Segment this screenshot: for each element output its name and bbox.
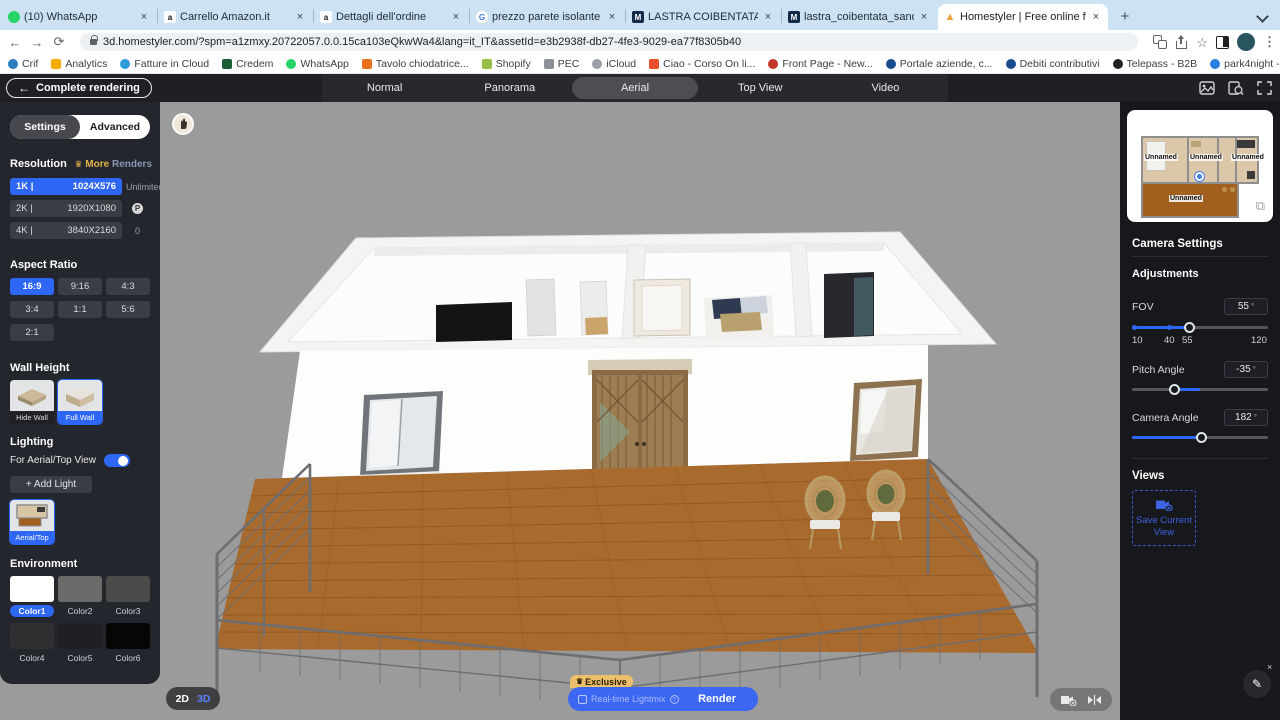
views-title: Views xyxy=(1132,470,1164,482)
unlimited-label: Unlimited xyxy=(126,182,164,192)
profile-avatar[interactable] xyxy=(1237,33,1255,51)
bookmark-fatture[interactable]: Fatture in Cloud xyxy=(120,58,209,70)
resolution-4k-button[interactable]: 4K | 3840X2160 xyxy=(10,222,122,239)
env-color2-swatch[interactable] xyxy=(58,576,102,602)
feedback-button[interactable]: ✎ xyxy=(1243,670,1271,698)
bookmark-star-icon[interactable]: ☆ xyxy=(1196,36,1208,49)
lock-icon xyxy=(90,39,97,45)
render-queue-icon[interactable] xyxy=(1228,81,1244,95)
reload-icon[interactable]: ⟳ xyxy=(48,34,70,50)
env-color5-swatch[interactable] xyxy=(58,623,102,649)
camera-plus-icon[interactable] xyxy=(1060,694,1077,706)
ciao-favicon xyxy=(649,59,659,69)
fov-slider-handle[interactable] xyxy=(1184,322,1195,333)
fov-tick: 55 xyxy=(1182,335,1193,346)
tab-google-search[interactable]: Gprezzo parete isolante sandwic× xyxy=(470,4,624,30)
2d-3d-toggle[interactable]: 2D 3D xyxy=(166,687,220,710)
hand-icon xyxy=(178,118,189,130)
more-renders-link[interactable]: ♛ More Renders xyxy=(74,159,152,170)
reading-list-icon[interactable] xyxy=(1216,36,1229,49)
aerial-3d-scene xyxy=(160,102,1120,720)
amazon-favicon: a xyxy=(164,11,176,23)
help-icon[interactable]: ? xyxy=(670,695,679,704)
url-text: 3d.homestyler.com/?spm=a1zmxy.20722057.0… xyxy=(103,36,741,48)
floorplan-minimap[interactable]: Unnamed Unnamed Unnamed Unnamed ⧉ xyxy=(1127,110,1273,222)
aerial-top-light-preset[interactable]: Aerial/Top xyxy=(10,500,54,544)
fov-tick: 40 xyxy=(1164,335,1175,346)
mode-panorama[interactable]: Panorama xyxy=(447,74,572,102)
env-color3-swatch[interactable] xyxy=(106,576,150,602)
render-settings-sidebar: Settings Advanced Resolution ♛ More Rend… xyxy=(0,102,160,684)
camera-angle-input[interactable]: 182 ° xyxy=(1224,409,1268,426)
room-label: Unnamed xyxy=(1144,154,1178,161)
tab-lastra-file[interactable]: Mlastra_coibentata_sandwich_m× xyxy=(782,4,936,30)
camera-settings-title: Camera Settings xyxy=(1132,238,1223,250)
4k-count-label: 0 xyxy=(135,226,140,236)
camera-angle-slider-handle[interactable] xyxy=(1196,432,1207,443)
ratio-16-9[interactable]: 16:9 xyxy=(10,278,54,295)
google-favicon: G xyxy=(476,11,488,23)
icloud-favicon xyxy=(592,59,602,69)
bookmark-pec[interactable]: PEC xyxy=(544,58,580,70)
pitch-angle-slider[interactable] xyxy=(1132,384,1268,395)
collision-toggle-icon[interactable] xyxy=(1087,694,1102,706)
env-color6-label: Color6 xyxy=(106,652,150,664)
view-mode-segment: Normal Panorama Aerial Top View Video xyxy=(322,74,948,102)
env-color6-swatch[interactable] xyxy=(106,623,150,649)
forward-icon[interactable]: → xyxy=(26,35,48,50)
portale-favicon xyxy=(886,59,896,69)
lighting-title: Lighting xyxy=(10,436,53,448)
bookmark-debiti[interactable]: Debiti contributivi xyxy=(1006,58,1100,70)
browser-menu-icon[interactable]: ⋮ xyxy=(1263,34,1276,50)
bookmark-telepass[interactable]: Telepass - B2B xyxy=(1113,58,1198,70)
pec-favicon xyxy=(544,59,554,69)
fov-tick: 10 xyxy=(1132,335,1143,346)
bookmark-whatsapp[interactable]: WhatsApp xyxy=(286,58,348,70)
mode-video[interactable]: Video xyxy=(823,74,948,102)
close-icon[interactable]: × xyxy=(762,11,774,23)
settings-advanced-tabs: Settings Advanced xyxy=(10,115,150,139)
manomano-favicon: M xyxy=(632,11,644,23)
aspect-ratio-title: Aspect Ratio xyxy=(10,259,77,271)
bookmark-tavolo[interactable]: Tavolo chiodatrice... xyxy=(362,58,469,70)
add-light-button[interactable]: + Add Light xyxy=(10,476,92,493)
ratio-5-6[interactable]: 5:6 xyxy=(106,301,150,318)
env-color1-label: Color1 xyxy=(10,605,54,617)
tab-settings[interactable]: Settings xyxy=(10,115,80,139)
homestyler-favicon: ▲ xyxy=(944,11,956,23)
translate-icon[interactable] xyxy=(1153,35,1167,49)
address-bar[interactable]: 3d.homestyler.com/?spm=a1zmxy.20722057.0… xyxy=(80,33,1138,51)
bookmark-crif[interactable]: Crif xyxy=(8,58,38,70)
resolution-1k-button[interactable]: 1K | 1024X576 xyxy=(10,178,122,195)
wall-height-title: Wall Height xyxy=(10,362,69,374)
close-icon[interactable]: × xyxy=(138,11,150,23)
lightmix-checkbox[interactable] xyxy=(578,695,587,704)
camera-save-icon xyxy=(1155,498,1173,511)
env-color1-swatch[interactable] xyxy=(10,576,54,602)
bookmark-portale[interactable]: Portale aziende, c... xyxy=(886,58,993,70)
camera-panel: Unnamed Unnamed Unnamed Unnamed ⧉ Camera… xyxy=(1120,102,1280,720)
tab-order-details[interactable]: aDettagli dell'ordine× xyxy=(314,4,468,30)
toggle-2d[interactable]: 2D xyxy=(176,693,189,705)
toggle-3d[interactable]: 3D xyxy=(197,693,210,705)
environment-title: Environment xyxy=(10,558,77,570)
lightmix-option[interactable]: Real-time Lightmix ? xyxy=(568,694,690,704)
browser-url-row: ← → ⟳ 3d.homestyler.com/?spm=a1zmxy.2072… xyxy=(0,30,1280,54)
park4night-favicon xyxy=(1210,59,1220,69)
viewport-tools-pill xyxy=(1050,688,1112,711)
whatsapp-favicon xyxy=(8,11,20,23)
feedback-close-icon[interactable]: × xyxy=(1267,662,1272,672)
new-tab-button[interactable]: + xyxy=(1114,6,1136,28)
tavolo-favicon xyxy=(362,59,372,69)
crown-icon: ♛ xyxy=(74,159,82,169)
room-label: Unnamed xyxy=(1189,154,1223,161)
pitch-angle-input[interactable]: -35 ° xyxy=(1224,361,1268,378)
back-arrow-icon: ← xyxy=(18,81,30,95)
minimap-camera-indicator[interactable] xyxy=(1195,172,1204,181)
close-icon[interactable]: × xyxy=(918,11,930,23)
manomano-favicon: M xyxy=(788,11,800,23)
crif-favicon xyxy=(8,59,18,69)
room-label: Unnamed xyxy=(1231,154,1265,161)
render-button[interactable]: Render xyxy=(690,693,758,705)
close-icon[interactable]: × xyxy=(606,11,618,23)
env-color3-label: Color3 xyxy=(106,605,150,617)
close-icon[interactable]: × xyxy=(1090,11,1102,23)
gallery-icon[interactable] xyxy=(1199,81,1215,95)
pitch-angle-label: Pitch Angle xyxy=(1132,364,1185,376)
bookmark-frontpage[interactable]: Front Page - New... xyxy=(768,58,872,70)
bookmark-shopify[interactable]: Shopify xyxy=(482,58,531,70)
fatture-favicon xyxy=(120,59,130,69)
resolution-title: Resolution xyxy=(10,158,67,170)
bookmark-credem[interactable]: Credem xyxy=(222,58,273,70)
pitch-slider-handle[interactable] xyxy=(1169,384,1180,395)
ratio-9-16[interactable]: 9:16 xyxy=(58,278,102,295)
ratio-1-1[interactable]: 1:1 xyxy=(58,301,102,318)
hide-wall-thumbnail xyxy=(10,380,54,411)
app-toolbar: ← Complete rendering Normal Panorama Aer… xyxy=(0,74,1280,102)
resolution-2k-button[interactable]: 2K | 1920X1080 xyxy=(10,200,122,217)
crown-icon: ♛ xyxy=(576,677,583,686)
coin-icon: P xyxy=(132,203,143,214)
bookmark-ciao[interactable]: Ciao - Corso On li... xyxy=(649,58,755,70)
pencil-icon: ✎ xyxy=(1252,677,1262,691)
aerial-top-thumbnail xyxy=(10,500,54,531)
tab-amazon-cart[interactable]: aCarrello Amazon.it× xyxy=(158,4,312,30)
tab-advanced[interactable]: Advanced xyxy=(80,115,150,139)
tab-search-chevron-icon[interactable] xyxy=(1256,10,1268,22)
fov-label: FOV xyxy=(1132,301,1154,313)
render-viewport[interactable]: 2D 3D ♛ Exclusive Real-time Lightmix ? R… xyxy=(160,102,1120,720)
env-color2-label: Color2 xyxy=(58,605,102,617)
adjustments-title: Adjustments xyxy=(1132,268,1199,280)
aerial-light-toggle-row: For Aerial/Top View xyxy=(10,454,130,467)
mode-aerial[interactable]: Aerial xyxy=(572,77,697,99)
amazon-favicon: a xyxy=(320,11,332,23)
mode-normal[interactable]: Normal xyxy=(322,74,447,102)
tab-lastra[interactable]: MLASTRA COIBENTATA SANDWI× xyxy=(626,4,780,30)
tab-whatsapp[interactable]: (10) WhatsApp× xyxy=(2,4,156,30)
env-color4-swatch[interactable] xyxy=(10,623,54,649)
debiti-favicon xyxy=(1006,59,1016,69)
fov-tick: 120 xyxy=(1251,335,1267,346)
render-bar: Real-time Lightmix ? Render xyxy=(568,687,758,711)
fov-input[interactable]: 55 ° xyxy=(1224,298,1268,315)
full-wall-option[interactable]: Full Wall xyxy=(58,380,102,424)
full-wall-thumbnail xyxy=(58,380,102,411)
collaborator-cursor-badge xyxy=(172,113,194,135)
browser-tab-strip: (10) WhatsApp× aCarrello Amazon.it× aDet… xyxy=(0,0,1280,30)
bookmarks-bar: Crif Analytics Fatture in Cloud Credem W… xyxy=(0,54,1280,74)
fov-slider[interactable] xyxy=(1132,322,1268,333)
hide-wall-option[interactable]: Hide Wall xyxy=(10,380,54,424)
camera-angle-label: Camera Angle xyxy=(1132,412,1199,424)
credem-favicon xyxy=(222,59,232,69)
fullscreen-icon[interactable] xyxy=(1257,81,1272,95)
whatsapp-favicon xyxy=(286,59,296,69)
shopify-favicon xyxy=(482,59,492,69)
share-icon[interactable] xyxy=(1175,36,1188,49)
camera-angle-slider[interactable] xyxy=(1132,432,1268,443)
env-color4-label: Color4 xyxy=(10,652,54,664)
aerial-light-toggle[interactable] xyxy=(104,454,130,467)
complete-rendering-button[interactable]: ← Complete rendering xyxy=(6,78,152,98)
tab-homestyler-active[interactable]: ▲Homestyler | Free online floor× xyxy=(938,4,1108,30)
bookmark-park4night[interactable]: park4night - Luoghi xyxy=(1210,58,1280,70)
bookmark-icloud[interactable]: iCloud xyxy=(592,58,636,70)
save-current-view-button[interactable]: Save Current View xyxy=(1132,490,1196,546)
close-icon[interactable]: × xyxy=(294,11,306,23)
deck-label: Unnamed xyxy=(1169,195,1203,202)
mode-top-view[interactable]: Top View xyxy=(698,74,823,102)
close-icon[interactable]: × xyxy=(450,11,462,23)
ratio-3-4[interactable]: 3:4 xyxy=(10,301,54,318)
analytics-favicon xyxy=(51,59,61,69)
ratio-4-3[interactable]: 4:3 xyxy=(106,278,150,295)
bookmark-analytics[interactable]: Analytics xyxy=(51,58,107,70)
env-color5-label: Color5 xyxy=(58,652,102,664)
back-icon[interactable]: ← xyxy=(4,35,26,50)
copy-plan-icon[interactable]: ⧉ xyxy=(1256,198,1265,214)
frontpage-favicon xyxy=(768,59,778,69)
telepass-favicon xyxy=(1113,59,1123,69)
ratio-2-1[interactable]: 2:1 xyxy=(10,324,54,341)
